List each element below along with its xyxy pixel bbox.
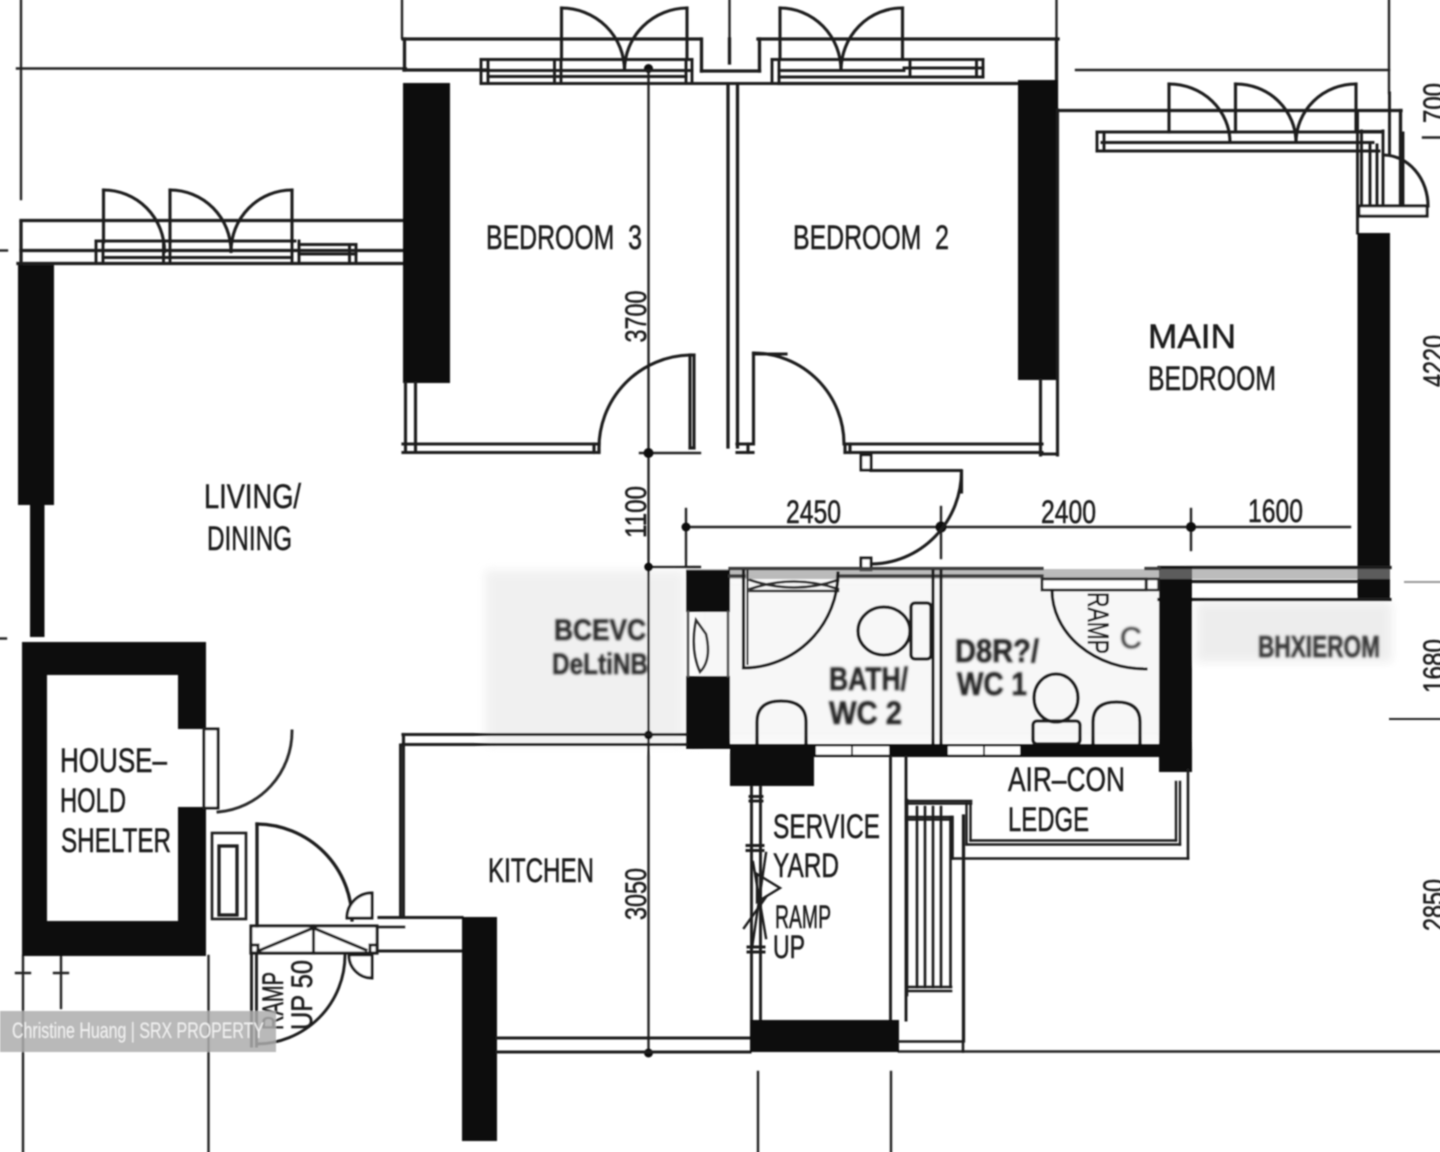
- svg-text:2450: 2450: [786, 494, 841, 530]
- svg-text:LIVING/: LIVING/: [204, 478, 301, 516]
- svg-text:LEDGE: LEDGE: [1008, 801, 1089, 839]
- svg-text:SHELTER: SHELTER: [61, 822, 171, 860]
- svg-text:D8R?/: D8R?/: [955, 633, 1039, 669]
- svg-text:1600: 1600: [1248, 493, 1303, 529]
- svg-text:SERVICE: SERVICE: [773, 808, 880, 846]
- svg-text:BEDROOM: BEDROOM: [1148, 360, 1276, 398]
- svg-text:HOUSE–: HOUSE–: [60, 742, 167, 780]
- svg-text:DINING: DINING: [207, 520, 292, 558]
- svg-text:BEDROOM 2: BEDROOM 2: [793, 219, 949, 257]
- svg-text:KITCHEN: KITCHEN: [488, 852, 594, 890]
- svg-text:3700: 3700: [620, 291, 653, 343]
- svg-text:Christine Huang | SRX PROPERTY: Christine Huang | SRX PROPERTY: [12, 1018, 264, 1043]
- svg-text:RAMP: RAMP: [1081, 592, 1114, 654]
- svg-text:2850: 2850: [1418, 879, 1440, 931]
- svg-text:4220: 4220: [1418, 335, 1440, 387]
- svg-text:BATH/: BATH/: [829, 661, 908, 697]
- svg-text:3050: 3050: [620, 868, 653, 920]
- svg-text:2400: 2400: [1041, 494, 1096, 530]
- svg-text:DeLtiNB: DeLtiNB: [552, 648, 648, 681]
- svg-text:BHXIEROM: BHXIEROM: [1258, 629, 1380, 664]
- svg-text:AIR–CON: AIR–CON: [1008, 761, 1125, 799]
- svg-text:MAIN: MAIN: [1148, 318, 1236, 356]
- svg-text:YARD: YARD: [773, 847, 839, 885]
- svg-text:BEDROOM 3: BEDROOM 3: [486, 219, 642, 257]
- svg-text:HOLD: HOLD: [60, 782, 126, 820]
- svg-text:C: C: [1120, 622, 1142, 655]
- svg-text:WC 2: WC 2: [829, 695, 902, 731]
- svg-text:1680: 1680: [1418, 639, 1440, 693]
- svg-text:BCEVC: BCEVC: [554, 614, 646, 647]
- svg-text:700: 700: [1418, 83, 1440, 123]
- svg-text:UP: UP: [773, 929, 805, 965]
- svg-text:WC 1: WC 1: [957, 666, 1027, 702]
- svg-text:UP 50: UP 50: [286, 960, 319, 1030]
- svg-text:1100: 1100: [620, 486, 653, 538]
